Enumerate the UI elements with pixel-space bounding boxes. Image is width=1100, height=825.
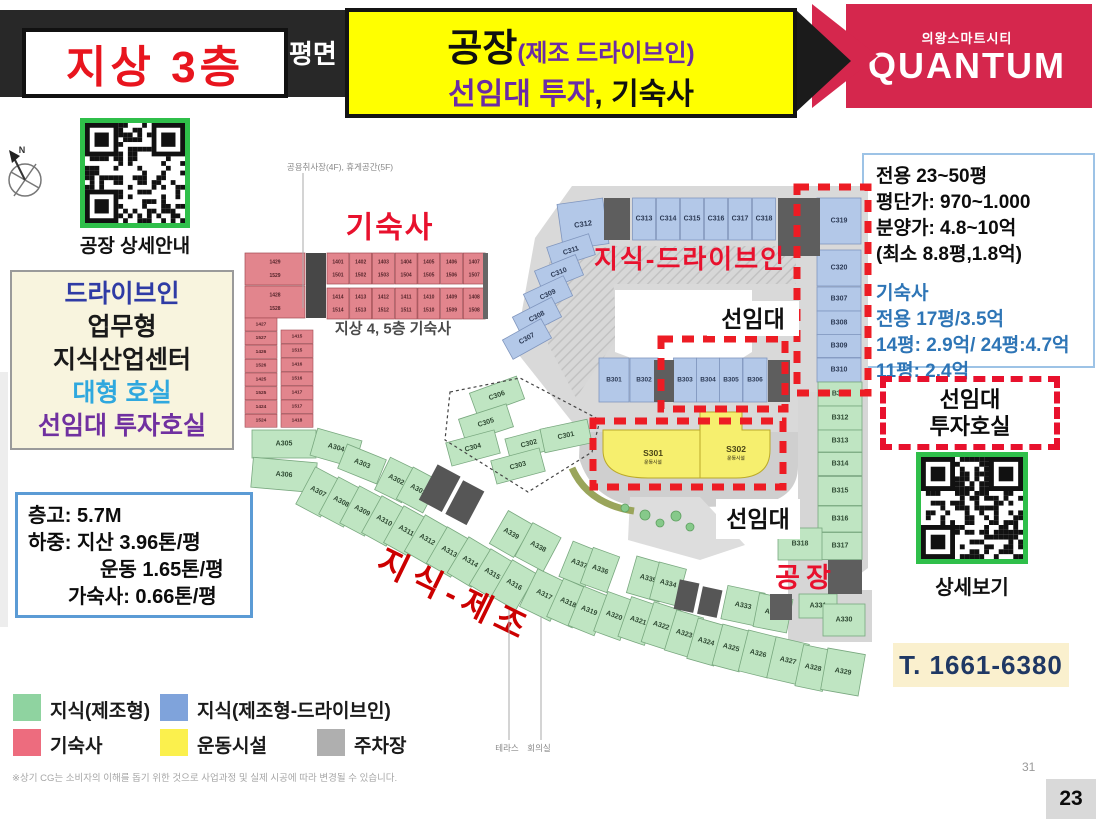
- room-A335: A335: [626, 556, 669, 602]
- svg-text:A322: A322: [652, 620, 670, 632]
- svg-text:B308: B308: [831, 320, 848, 327]
- price-box: 전용 23~50평평단가: 970~1.000분양가: 4.8~10억(최소 8…: [862, 153, 1095, 368]
- svg-text:C306: C306: [488, 390, 506, 402]
- room-B308: B308: [817, 311, 861, 335]
- legend-swatch-1: [160, 694, 188, 721]
- room-A316: A316: [491, 560, 536, 610]
- svg-text:A301: A301: [409, 483, 427, 497]
- room-C307: C307: [502, 319, 551, 360]
- plan-text: 1429: [269, 260, 280, 266]
- zone-label-factory: 공장: [775, 563, 837, 593]
- svg-text:A313: A313: [440, 545, 458, 559]
- plan-text: 1517: [292, 403, 303, 409]
- tree-icon: [640, 510, 650, 520]
- dorm-caption: 지상 4, 5층 기숙사: [335, 321, 451, 338]
- svg-text:A304: A304: [327, 442, 345, 453]
- highlight-dashed-0: [797, 187, 868, 393]
- feature-line-3: 대형 호실: [12, 377, 232, 410]
- room-A326: A326: [738, 630, 777, 678]
- legend-label-3: 운동시설: [197, 731, 267, 758]
- plan-text: 1410: [423, 294, 434, 300]
- prelease-label-bg-1: [707, 301, 799, 336]
- svg-text:B302: B302: [636, 377, 652, 384]
- svg-text:A326: A326: [749, 649, 767, 660]
- svg-text:B317: B317: [832, 543, 849, 550]
- plan-text: 지상 4, 5층 기숙사: [335, 321, 451, 338]
- corridor-annex: [788, 590, 872, 642]
- svg-text:A324: A324: [697, 636, 715, 647]
- price-black-line-0: 전용 23~50평: [876, 164, 1081, 190]
- svg-text:A337: A337: [570, 558, 588, 571]
- svg-text:A339: A339: [502, 527, 520, 541]
- svg-text:C303: C303: [509, 460, 527, 471]
- plan-text: 1528: [269, 306, 280, 312]
- zone-label-dorm: 기숙사: [346, 212, 435, 245]
- tree-icon: [686, 523, 694, 531]
- svg-text:C310: C310: [550, 267, 568, 280]
- plan-text: 1414: [332, 294, 343, 300]
- svg-text:C308: C308: [528, 310, 546, 324]
- room-B316: B316: [818, 506, 862, 532]
- room-A325: A325: [712, 624, 750, 672]
- page-number-small: 31: [1022, 760, 1035, 774]
- footnote: ※상기 CG는 소비자의 이해를 돕기 위한 것으로 사업과정 및 실제 시공에…: [12, 770, 397, 784]
- feature-line-4: 선임대 투자호실: [12, 410, 232, 443]
- core-block: [654, 360, 674, 402]
- core-block: [604, 198, 630, 240]
- svg-text:A335: A335: [639, 573, 657, 584]
- svg-text:A318: A318: [559, 596, 577, 609]
- svg-text:A305: A305: [276, 441, 293, 448]
- svg-text:A310: A310: [375, 514, 393, 528]
- svg-text:A323: A323: [675, 628, 693, 640]
- room-A310: A310: [362, 496, 407, 546]
- room-B319: B319: [740, 501, 780, 527]
- room-C313: C313: [633, 198, 656, 240]
- room-A308: A308: [319, 477, 363, 527]
- plan-text: 1407: [469, 259, 480, 265]
- room-A322: A322: [641, 602, 681, 651]
- room-A309: A309: [340, 486, 384, 536]
- svg-text:B306: B306: [747, 377, 763, 384]
- svg-text:A315: A315: [483, 567, 501, 582]
- zone-label-manufacture: 지식-제조: [372, 542, 539, 649]
- room-A321: A321: [618, 597, 658, 646]
- svg-text:A317: A317: [535, 588, 553, 602]
- plan-text: 1428: [269, 293, 280, 299]
- room-A330: A330: [823, 604, 865, 636]
- tree-icon: [621, 504, 629, 512]
- plan-text: 1403: [378, 259, 389, 265]
- room-C316: C316: [705, 198, 728, 240]
- room-B301: B301: [599, 358, 629, 402]
- svg-text:B309: B309: [831, 343, 848, 350]
- plan-text: 지식-드라이브인: [594, 244, 786, 274]
- price-black-line-2: 분양가: 4.8~10억: [876, 216, 1081, 242]
- title-main: 공장: [447, 28, 517, 70]
- title-sub: (제조 드라이브인): [517, 40, 694, 67]
- price-blue-line-1: 전용 17평/3.5억: [876, 307, 1081, 333]
- room-A337: A337: [559, 541, 599, 587]
- svg-text:B304: B304: [700, 377, 716, 384]
- plan-text: 운동시설: [727, 455, 745, 462]
- price-blue-line-0: 기숙사: [876, 281, 1081, 307]
- room-C309: C309: [523, 276, 572, 315]
- svg-text:C304: C304: [464, 442, 482, 453]
- plan-text: 1527: [256, 335, 267, 341]
- room-A312: A312: [404, 515, 449, 565]
- svg-text:C309: C309: [539, 288, 557, 301]
- room-C311: C311: [547, 234, 596, 269]
- room-B311: B311: [818, 382, 862, 406]
- svg-text:B310: B310: [831, 367, 848, 374]
- zone-label-drive-in: 지식-드라이브인: [594, 244, 786, 274]
- plan-text: 1417: [292, 389, 303, 395]
- svg-text:C302: C302: [520, 438, 538, 449]
- svg-text:B314: B314: [832, 461, 849, 468]
- slide: 평면 지상 3층 공장(제조 드라이브인) 선임대 투자, 기숙사 의왕스마트시…: [0, 0, 1100, 825]
- floor-badge: 지상 3층: [22, 28, 288, 98]
- phone-number: T. 1661-6380: [893, 643, 1069, 687]
- svg-text:B316: B316: [832, 516, 849, 523]
- svg-text:A302: A302: [387, 473, 405, 487]
- plan-text: 1506: [446, 272, 457, 278]
- hedge: [572, 468, 634, 511]
- svg-text:A321: A321: [629, 615, 647, 627]
- svg-text:A312: A312: [418, 533, 436, 547]
- corridor-right: [788, 392, 868, 592]
- room-B302: B302: [630, 358, 658, 402]
- room-A323: A323: [664, 610, 703, 658]
- svg-text:A327: A327: [779, 656, 797, 667]
- legend-swatch-4: [317, 729, 345, 756]
- room-A338: A338: [515, 523, 561, 572]
- room-B307: B307: [817, 287, 861, 311]
- plan-text: 1405: [423, 259, 434, 265]
- plan-text: 1516: [292, 375, 303, 381]
- price-black-line-3: (최소 8.8평,1.8억): [876, 242, 1081, 268]
- plan-text: 1501: [332, 272, 343, 278]
- courtyard: [615, 290, 752, 384]
- plan-text: 1426: [256, 349, 267, 355]
- plan-text: 1515: [292, 347, 303, 353]
- feature-box: 드라이브인업무형지식산업센터대형 호실선임대 투자호실: [10, 270, 234, 450]
- plan-text: 1411: [401, 294, 412, 300]
- callout-terrace: 테라스: [495, 743, 519, 753]
- plan-text: 1510: [423, 307, 434, 313]
- plan-text: 1424: [256, 404, 267, 410]
- room-A329: A329: [821, 648, 866, 696]
- room-C302: C302: [505, 428, 553, 461]
- svg-text:C312: C312: [573, 218, 592, 229]
- plan-text: 선임대: [721, 306, 784, 332]
- spec-box: 층고: 5.7M하중: 지산 3.96톤/평운동 1.65톤/평가숙사: 0.6…: [15, 492, 253, 618]
- svg-text:C314: C314: [660, 216, 677, 223]
- plan-text: 1529: [269, 273, 280, 279]
- svg-text:A338: A338: [529, 540, 547, 554]
- room-C301: C301: [540, 419, 592, 452]
- svg-text:A307: A307: [309, 485, 327, 499]
- svg-text:C320: C320: [831, 265, 848, 272]
- corridor-base: [515, 186, 868, 432]
- room-C305: C305: [459, 404, 514, 442]
- room-B314: B314: [818, 453, 862, 476]
- room-B305: B305: [720, 358, 743, 402]
- plan-text: 1524: [256, 418, 267, 424]
- apron: [579, 432, 798, 508]
- plan-text: 1507: [469, 272, 480, 278]
- qr-code-detail-label: 상세보기: [916, 571, 1028, 600]
- svg-text:C318: C318: [756, 216, 773, 223]
- room-C306: C306: [469, 376, 524, 416]
- room-C304: C304: [446, 430, 501, 466]
- svg-text:A316: A316: [505, 578, 523, 592]
- svg-text:A333: A333: [734, 601, 752, 611]
- room-A328: A328: [795, 645, 831, 692]
- plan-text: 1402: [355, 259, 366, 265]
- room-A324: A324: [687, 618, 725, 666]
- svg-text:C301: C301: [557, 431, 575, 441]
- highlight-dashed-1: [661, 339, 785, 409]
- plan-text: 1406: [446, 259, 457, 265]
- room-C312: C312: [557, 198, 609, 250]
- title-banner-line2: 선임대 투자, 기숙사: [349, 69, 793, 113]
- feature-line-2: 지식산업센터: [12, 344, 232, 377]
- svg-text:B315: B315: [832, 488, 849, 495]
- qr-pattern: [921, 457, 1023, 559]
- svg-text:C315: C315: [684, 216, 701, 223]
- prelease-label-1: 선임대: [721, 306, 784, 332]
- plan-text: 기숙사: [346, 212, 435, 245]
- highlight-dashed-2: [593, 421, 783, 487]
- prelease-line2: 투자호실: [930, 413, 1011, 440]
- room-A311: A311: [384, 506, 429, 556]
- room-C310: C310: [534, 255, 583, 292]
- feature-line-1: 업무형: [12, 311, 232, 344]
- svg-text:B311: B311: [832, 391, 848, 398]
- svg-text:A311: A311: [397, 524, 415, 538]
- svg-text:A319: A319: [580, 605, 598, 618]
- plan-text: 1408: [469, 294, 480, 300]
- room-C319: C319: [817, 198, 861, 244]
- room-C315: C315: [681, 198, 704, 240]
- svg-text:A320: A320: [605, 610, 623, 622]
- feature-line-0: 드라이브인: [12, 278, 232, 311]
- core-block: [778, 198, 820, 256]
- qr-code-factory: [80, 118, 190, 228]
- svg-text:C307: C307: [518, 332, 536, 346]
- title-rest: , 기숙사: [594, 78, 693, 111]
- svg-text:C319: C319: [831, 218, 848, 225]
- plan-text: 1504: [401, 272, 412, 278]
- svg-text:A314: A314: [461, 555, 479, 570]
- legend-swatch-2: [13, 729, 41, 756]
- page-number-badge: 23: [1046, 779, 1096, 819]
- svg-text:B305: B305: [723, 377, 739, 384]
- plan-text: 1401: [332, 259, 343, 265]
- svg-text:A303: A303: [353, 458, 371, 471]
- prelease-line1: 선임대: [940, 386, 1001, 413]
- spec-line-1: 하중: 지산 3.96톤/평: [28, 530, 240, 557]
- room-B315: B315: [818, 477, 862, 506]
- plan-text: 1416: [292, 361, 303, 367]
- room-A304: A304: [310, 428, 362, 468]
- brand-banner: 의왕스마트시티 QUANTUM: [846, 4, 1092, 108]
- plan-text: 운동시설: [644, 459, 662, 466]
- room-C320: C320: [817, 250, 861, 286]
- parking-hatch-top: [613, 246, 796, 284]
- prelease-label-2: 선임대: [726, 506, 789, 532]
- plan-text: 1427: [256, 321, 267, 327]
- room-A305: A305: [252, 430, 316, 458]
- room-A306: A306: [251, 457, 317, 492]
- plan-text: 1512: [378, 307, 389, 313]
- room-A320: A320: [594, 591, 635, 640]
- floor-badge-text: 지상 3층: [66, 31, 244, 95]
- room-A334: A334: [650, 562, 687, 606]
- svg-text:A331: A331: [810, 603, 827, 610]
- brand-logo: 의왕스마트시티 QUANTUM: [868, 28, 1066, 85]
- room-A336: A336: [580, 547, 619, 592]
- svg-text:B319: B319: [752, 511, 769, 518]
- callout-kitchen: 공용취사장(4F), 휴게공간(5F): [287, 162, 393, 172]
- room-C308: C308: [512, 297, 561, 337]
- core-block: [768, 360, 790, 402]
- svg-text:B307: B307: [831, 296, 848, 303]
- plan-text: 1413: [355, 294, 366, 300]
- plan-text: 1409: [446, 294, 457, 300]
- price-gap: [876, 268, 1081, 281]
- legend-swatch-0: [13, 694, 41, 721]
- title-banner: 공장(제조 드라이브인) 선임대 투자, 기숙사: [345, 8, 797, 118]
- brand-name-text: QUANTUM: [868, 47, 1066, 85]
- svg-text:A306: A306: [275, 471, 292, 479]
- plan-text: S302: [726, 444, 746, 454]
- legend-label-2: 기숙사: [50, 731, 102, 758]
- svg-text:C305: C305: [477, 417, 495, 429]
- room-B309: B309: [817, 335, 861, 358]
- legend-label-1: 지식(제조형-드라이브인): [197, 696, 391, 723]
- core-block: [770, 594, 792, 620]
- room-B312: B312: [818, 406, 862, 430]
- room-C317: C317: [729, 198, 752, 240]
- price-blue-line-2: 14평: 2.9억/ 24평:4.7억: [876, 333, 1081, 359]
- svg-text:C313: C313: [636, 216, 653, 223]
- room-A301: A301: [396, 467, 439, 513]
- plan-text: 1511: [401, 307, 412, 313]
- room-A332: A332: [753, 593, 793, 633]
- room-A317: A317: [520, 569, 569, 622]
- title-banner-line1: 공장(제조 드라이브인): [349, 17, 793, 72]
- legend-label-0: 지식(제조형): [50, 696, 150, 723]
- cluster-dotted-outline: [445, 378, 600, 492]
- room-A303: A303: [338, 444, 387, 484]
- plan-text: 선임대: [726, 506, 789, 532]
- room-A327: A327: [767, 637, 810, 686]
- svg-text:A308: A308: [332, 495, 350, 509]
- svg-text:A330: A330: [836, 617, 853, 624]
- room-B303: B303: [674, 358, 697, 402]
- svg-text:B301: B301: [606, 377, 622, 384]
- plan-text: 1505: [423, 272, 434, 278]
- room-C318: C318: [753, 198, 776, 240]
- walkway: [628, 497, 745, 560]
- plan-text: 1418: [292, 417, 303, 423]
- core-block: [828, 560, 862, 594]
- plan-text: 1514: [332, 307, 343, 313]
- plan-text: 1525: [256, 390, 267, 396]
- svg-text:C311: C311: [562, 245, 580, 257]
- room-A314: A314: [447, 537, 493, 587]
- svg-text:B318: B318: [792, 541, 809, 548]
- room-A319: A319: [568, 586, 610, 635]
- room-B317: B317: [818, 533, 862, 560]
- spec-line-2: 운동 1.65톤/평: [28, 557, 240, 584]
- room-B304: B304: [697, 358, 720, 402]
- edge-sliver: [0, 372, 8, 627]
- room-A302: A302: [375, 457, 418, 503]
- svg-text:C316: C316: [708, 216, 725, 223]
- svg-text:A325: A325: [722, 642, 740, 653]
- plan-text: 회의실: [527, 743, 550, 753]
- plan-text: 1503: [378, 272, 389, 278]
- plan-text: 공장: [775, 563, 837, 593]
- plan-text: 1509: [446, 307, 457, 313]
- plan-text: 1425: [256, 376, 267, 382]
- callout-meeting: 회의실: [527, 743, 550, 753]
- svg-text:N: N: [19, 145, 26, 155]
- plan-text: 1502: [355, 272, 366, 278]
- svg-text:B312: B312: [832, 415, 849, 422]
- spec-line-0: 층고: 5.7M: [28, 503, 240, 530]
- plan-text: 1526: [256, 363, 267, 369]
- svg-text:A332: A332: [764, 608, 782, 618]
- room-A333: A333: [721, 585, 765, 626]
- qr-code-factory-label: 공장 상세안내: [50, 231, 220, 258]
- room-A339: A339: [489, 511, 532, 558]
- legend-swatch-3: [160, 729, 188, 756]
- svg-text:B313: B313: [832, 438, 849, 445]
- plan-text: 1508: [469, 307, 480, 313]
- plan-text: 1404: [401, 259, 412, 265]
- room-B313: B313: [818, 430, 862, 452]
- title-accent: 선임대 투자: [448, 78, 594, 111]
- room-A315: A315: [469, 549, 515, 599]
- tree-icon: [656, 519, 664, 527]
- plan-text: 지식-제조: [372, 542, 539, 649]
- svg-text:C317: C317: [732, 216, 749, 223]
- svg-text:A329: A329: [834, 667, 852, 677]
- plan-text: 1415: [292, 333, 303, 339]
- room-A331: A331: [799, 594, 837, 618]
- plan-text: 테라스: [495, 743, 519, 753]
- svg-text:B303: B303: [677, 377, 693, 384]
- room-C314: C314: [657, 198, 680, 240]
- prelease-label-bg-2: [716, 499, 800, 539]
- price-black-line-1: 평단가: 970~1.000: [876, 190, 1081, 216]
- svg-text:A309: A309: [353, 504, 371, 518]
- plan-text: 1513: [355, 307, 366, 313]
- plan-text: 1412: [378, 294, 389, 300]
- room-A313: A313: [426, 527, 471, 577]
- compass-icon: N: [9, 145, 41, 196]
- svg-text:A328: A328: [804, 663, 822, 673]
- room-B310: B310: [817, 358, 861, 382]
- room-A307: A307: [296, 467, 340, 517]
- tree-icon: [671, 511, 681, 521]
- room-B306: B306: [743, 358, 767, 402]
- svg-text:A336: A336: [591, 564, 609, 576]
